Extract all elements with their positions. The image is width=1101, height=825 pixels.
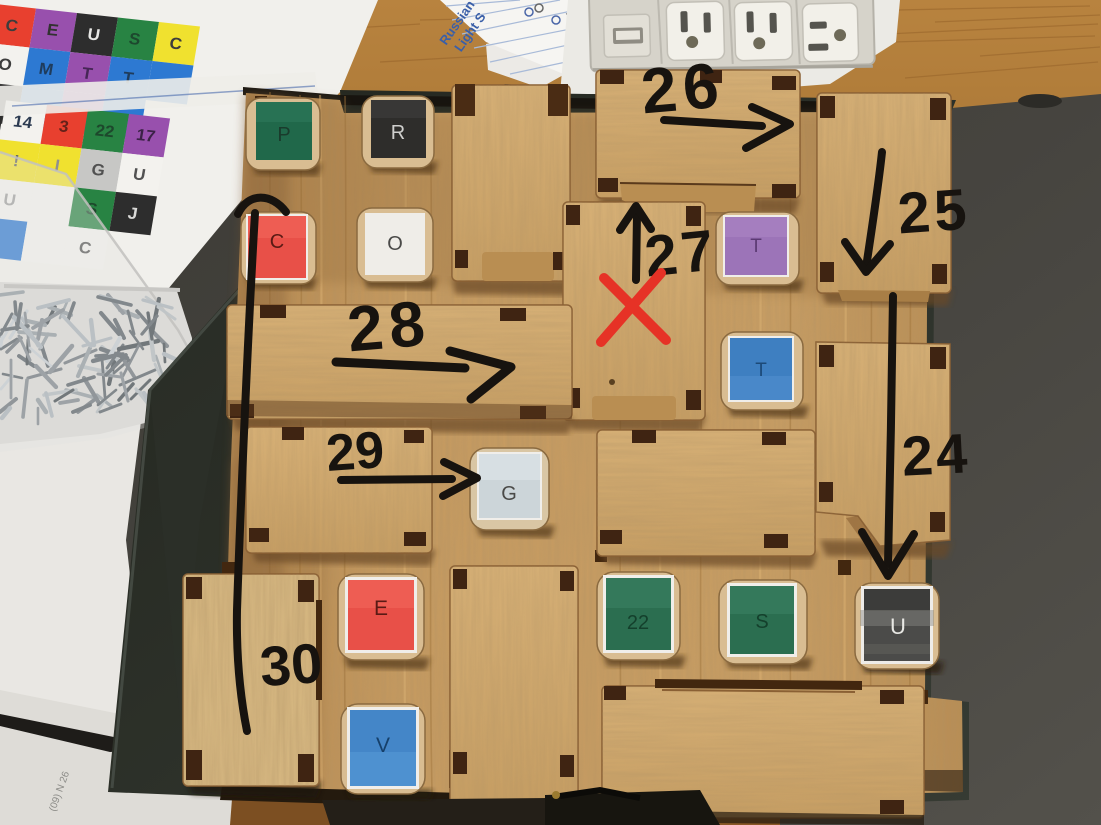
svg-text:28: 28 (344, 287, 433, 366)
svg-text:G: G (501, 483, 517, 505)
svg-text:O: O (387, 233, 403, 255)
svg-text:26: 26 (638, 49, 727, 128)
svg-text:U: U (890, 614, 906, 639)
svg-text:C: C (270, 231, 284, 253)
svg-text:R: R (391, 122, 405, 144)
svg-text:29: 29 (324, 421, 386, 483)
svg-text:22: 22 (94, 121, 116, 141)
svg-text:V: V (376, 734, 390, 757)
svg-text:30: 30 (258, 631, 325, 698)
svg-text:T: T (755, 360, 767, 381)
svg-text:17: 17 (135, 125, 157, 145)
svg-text:24: 24 (900, 421, 972, 487)
svg-text:25: 25 (896, 177, 973, 247)
svg-text:T: T (750, 236, 762, 257)
svg-text:S: S (755, 611, 768, 633)
svg-text:M: M (38, 59, 55, 79)
svg-text:22: 22 (627, 612, 649, 634)
svg-text:E: E (374, 597, 388, 620)
svg-text:P: P (277, 124, 290, 146)
